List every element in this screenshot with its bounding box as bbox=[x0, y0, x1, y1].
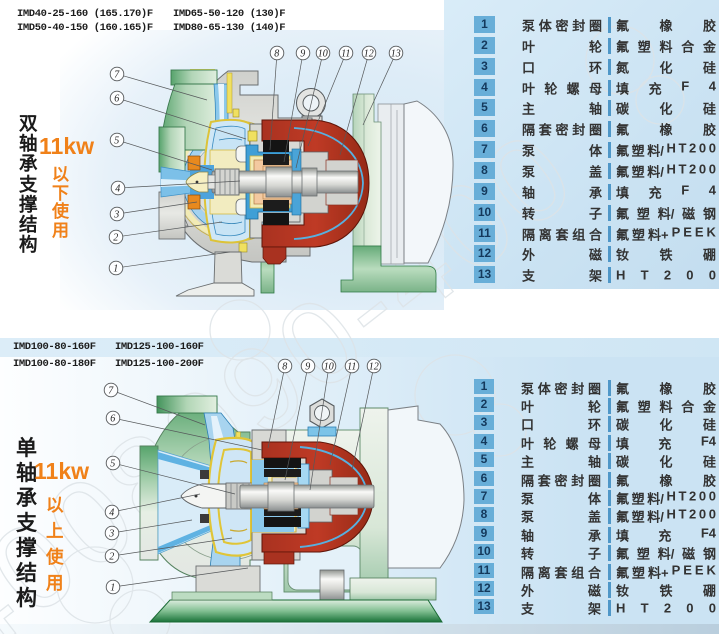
svg-text:12: 12 bbox=[364, 49, 374, 60]
svg-text:4: 4 bbox=[115, 184, 120, 195]
svg-text:9: 9 bbox=[300, 49, 305, 60]
svg-text:1: 1 bbox=[113, 264, 118, 275]
svg-text:2: 2 bbox=[109, 552, 114, 563]
svg-text:11: 11 bbox=[347, 362, 356, 373]
svg-text:9: 9 bbox=[305, 362, 310, 373]
svg-text:5: 5 bbox=[110, 459, 115, 470]
svg-text:4: 4 bbox=[109, 508, 114, 519]
svg-text:12: 12 bbox=[369, 362, 379, 373]
svg-text:3: 3 bbox=[108, 529, 114, 540]
svg-text:2: 2 bbox=[113, 233, 118, 244]
svg-text:13: 13 bbox=[391, 49, 401, 60]
svg-text:1: 1 bbox=[110, 583, 115, 594]
svg-text:10: 10 bbox=[324, 362, 334, 373]
svg-text:6: 6 bbox=[114, 94, 119, 105]
svg-text:8: 8 bbox=[282, 362, 287, 373]
svg-text:3: 3 bbox=[113, 210, 119, 221]
svg-text:11: 11 bbox=[341, 49, 350, 60]
svg-text:5: 5 bbox=[114, 136, 119, 147]
svg-text:8: 8 bbox=[274, 49, 279, 60]
svg-text:10: 10 bbox=[318, 49, 328, 60]
svg-text:6: 6 bbox=[110, 414, 115, 425]
